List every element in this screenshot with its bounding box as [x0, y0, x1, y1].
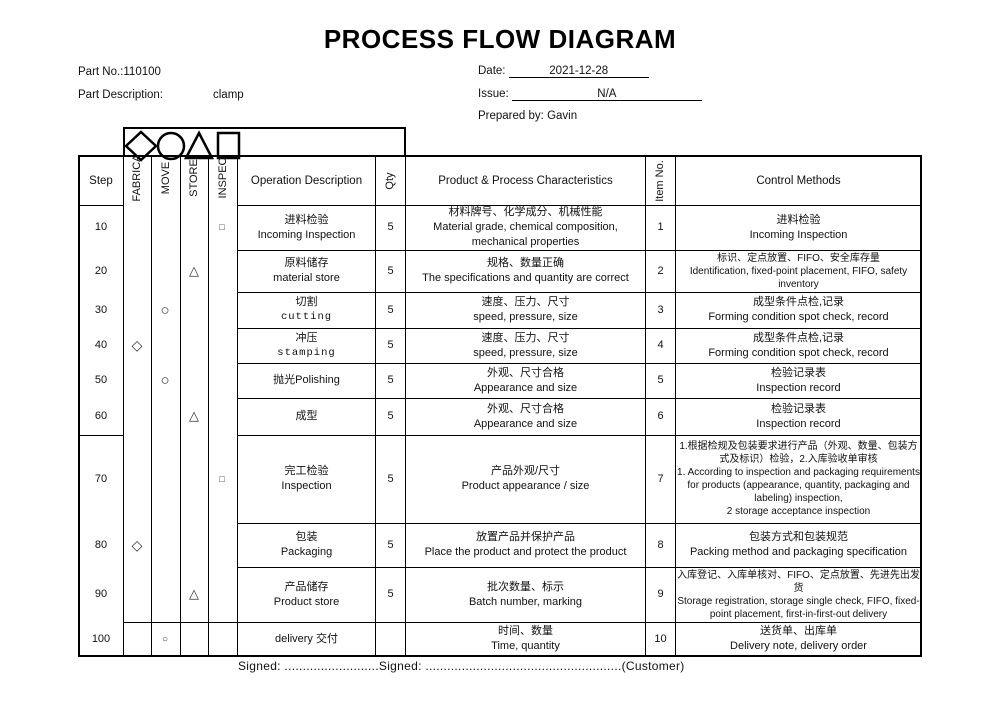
operation-en: Packaging	[281, 545, 332, 560]
operation-cell: 产品储存 Product store	[238, 567, 375, 622]
characteristics-en: Material grade, chemical composition, me…	[406, 220, 645, 250]
row-symbol-triangle-icon: △	[183, 260, 205, 282]
characteristics-cell: 放置产品并保护产品 Place the product and protect …	[406, 523, 645, 567]
operation-cn: delivery 交付	[275, 632, 338, 647]
control-en: Delivery note, delivery order	[730, 639, 867, 654]
row-symbol-triangle-icon: △	[183, 405, 205, 427]
characteristics-cn: 速度、压力、尺寸	[482, 331, 570, 346]
control-cell: 送货单、出库单 Delivery note, delivery order	[676, 622, 921, 656]
column-header-fabricate: FABRICA	[130, 143, 144, 213]
qty-value: 5	[376, 523, 405, 567]
item-no-value: 1	[646, 205, 675, 250]
operation-en: Incoming Inspection	[258, 228, 356, 243]
operation-cell: delivery 交付	[238, 622, 375, 656]
operation-en: Product store	[274, 595, 339, 610]
step-value: 40	[79, 328, 123, 363]
signed-line: Signed: ..........................Signed…	[238, 659, 685, 673]
row-symbol-square-icon: □	[211, 216, 233, 238]
column-header-step: Step	[79, 156, 123, 205]
control-cn: 1.根据检规及包装要求进行产品（外观、数量、包装方式及标识）检验，2.入库验收单…	[676, 440, 921, 466]
step-value: 20	[79, 250, 123, 292]
row-symbol-square-icon: □	[211, 468, 233, 490]
step-value: 100	[79, 622, 123, 656]
characteristics-en: Batch number, marking	[469, 595, 582, 610]
characteristics-cell: 时间、数量 Time, quantity	[406, 622, 645, 656]
characteristics-cn: 材料牌号、化学成分、机械性能	[449, 205, 603, 220]
control-cell: 包装方式和包装规范 Packing method and packaging s…	[676, 523, 921, 567]
control-cn: 检验记录表	[771, 402, 826, 417]
control-cn: 检验记录表	[771, 366, 826, 381]
qty-value: 5	[376, 435, 405, 523]
qty-value: 5	[376, 328, 405, 363]
row-symbol-diamond-icon: ◇	[126, 534, 148, 556]
characteristics-en: Appearance and size	[474, 417, 577, 432]
step-value: 30	[79, 292, 123, 328]
item-no-value: 2	[646, 250, 675, 292]
control-cell: 成型条件点检,记录 Forming condition spot check, …	[676, 328, 921, 363]
operation-cn: 冲压	[296, 331, 318, 346]
control-en: Packing method and packaging specificati…	[690, 545, 907, 560]
operation-cell: 完工检验 Inspection	[238, 435, 375, 523]
characteristics-cn: 外观、尺寸合格	[487, 402, 564, 417]
characteristics-cell: 外观、尺寸合格 Appearance and size	[406, 398, 645, 435]
qty-value: 5	[376, 205, 405, 250]
characteristics-cell: 批次数量、标示 Batch number, marking	[406, 567, 645, 622]
characteristics-en: Appearance and size	[474, 381, 577, 396]
operation-cell: 抛光Polishing	[238, 363, 375, 398]
characteristics-cell: 速度、压力、尺寸 speed, pressure, size	[406, 328, 645, 363]
operation-cell: 原料储存 material store	[238, 250, 375, 292]
step-value: 70	[79, 435, 123, 523]
item-no-value: 8	[646, 523, 675, 567]
control-cell: 标识、定点放置、FIFO、安全库存量 Identification, fixed…	[676, 250, 921, 292]
operation-cn: 产品储存	[285, 580, 329, 595]
column-header-control: Control Methods	[676, 156, 921, 205]
control-en: Forming condition spot check, record	[708, 346, 888, 361]
control-en: Storage registration, storage single che…	[676, 595, 921, 621]
item-no-value: 3	[646, 292, 675, 328]
characteristics-en: The specifications and quantity are corr…	[422, 271, 629, 286]
item-no-value: 5	[646, 363, 675, 398]
operation-cn: 抛光Polishing	[273, 373, 340, 388]
characteristics-cell: 规格、数量正确 The specifications and quantity …	[406, 250, 645, 292]
characteristics-cn: 批次数量、标示	[487, 580, 564, 595]
control-cn: 包装方式和包装规范	[749, 530, 848, 545]
column-header-store: STORE	[187, 143, 201, 213]
row-symbol-diamond-icon: ◇	[126, 334, 148, 356]
process-flow-document: PROCESS FLOW DIAGRAM Part No.:110100 Par…	[0, 0, 1000, 707]
characteristics-cn: 外观、尺寸合格	[487, 366, 564, 381]
operation-en: material store	[273, 271, 340, 286]
qty-value: 5	[376, 363, 405, 398]
control-en: Forming condition spot check, record	[708, 310, 888, 325]
qty-value: 5	[376, 292, 405, 328]
column-header-characteristics: Product & Process Characteristics	[406, 156, 645, 205]
control-en: Identification, fixed-point placement, F…	[676, 265, 921, 291]
operation-cn: 包装	[296, 530, 318, 545]
characteristics-cn: 规格、数量正确	[487, 256, 564, 271]
qty-value: 5	[376, 250, 405, 292]
item-no-value: 7	[646, 435, 675, 523]
control-cell: 检验记录表 Inspection record	[676, 363, 921, 398]
operation-cn: 成型	[296, 409, 318, 424]
operation-cn: 切割	[296, 295, 318, 310]
characteristics-en: speed, pressure, size	[473, 346, 578, 361]
control-cell: 1.根据检规及包装要求进行产品（外观、数量、包装方式及标识）检验，2.入库验收单…	[676, 435, 921, 523]
control-en: Incoming Inspection	[750, 228, 848, 243]
characteristics-cn: 产品外观/尺寸	[491, 464, 560, 479]
control-en: Inspection record	[756, 417, 840, 432]
characteristics-en: Place the product and protect the produc…	[425, 545, 627, 560]
control-cn: 入库登记、入库单核对、FIFO、定点放置、先进先出发货	[676, 569, 921, 595]
row-symbol-circle-icon: ○	[154, 369, 176, 391]
item-no-value: 6	[646, 398, 675, 435]
column-header-operation: Operation Description	[238, 156, 375, 205]
item-no-value: 10	[646, 622, 675, 656]
characteristics-cell: 材料牌号、化学成分、机械性能 Material grade, chemical …	[406, 205, 645, 250]
qty-value	[376, 622, 405, 656]
control-cn: 送货单、出库单	[760, 624, 837, 639]
row-symbol-triangle-icon: △	[183, 583, 205, 605]
step-value: 80	[79, 523, 123, 567]
control-en: 1. According to inspection and packaging…	[676, 466, 921, 518]
control-cn: 标识、定点放置、FIFO、安全库存量	[717, 252, 880, 265]
item-no-value: 4	[646, 328, 675, 363]
column-header-inspect: INSPEC	[216, 143, 230, 213]
operation-cell: 切割 cutting	[238, 292, 375, 328]
operation-en: stamping	[277, 346, 335, 360]
control-cn: 进料检验	[777, 213, 821, 228]
operation-cell: 包装 Packaging	[238, 523, 375, 567]
operation-cell: 冲压 stamping	[238, 328, 375, 363]
control-cell: 进料检验 Incoming Inspection	[676, 205, 921, 250]
step-value: 10	[79, 205, 123, 250]
item-no-value: 9	[646, 567, 675, 622]
step-value: 60	[79, 398, 123, 435]
characteristics-en: speed, pressure, size	[473, 310, 578, 325]
row-symbol-circle-icon: ○	[154, 628, 176, 650]
control-cell: 入库登记、入库单核对、FIFO、定点放置、先进先出发货 Storage regi…	[676, 567, 921, 622]
operation-cn: 进料检验	[285, 213, 329, 228]
operation-en: cutting	[281, 310, 332, 324]
characteristics-en: Time, quantity	[491, 639, 560, 654]
operation-cn: 原料储存	[285, 256, 329, 271]
qty-value: 5	[376, 398, 405, 435]
operation-cn: 完工检验	[285, 464, 329, 479]
characteristics-cell: 速度、压力、尺寸 speed, pressure, size	[406, 292, 645, 328]
operation-cell: 成型	[238, 398, 375, 435]
operation-en: Inspection	[281, 479, 331, 494]
characteristics-en: Product appearance / size	[462, 479, 590, 494]
control-cn: 成型条件点检,记录	[753, 295, 844, 310]
operation-cell: 进料检验 Incoming Inspection	[238, 205, 375, 250]
control-cell: 成型条件点检,记录 Forming condition spot check, …	[676, 292, 921, 328]
qty-value: 5	[376, 567, 405, 622]
row-symbol-circle-icon: ○	[154, 299, 176, 321]
characteristics-cell: 产品外观/尺寸 Product appearance / size	[406, 435, 645, 523]
column-header-move: MOVE	[159, 143, 173, 213]
control-cell: 检验记录表 Inspection record	[676, 398, 921, 435]
control-en: Inspection record	[756, 381, 840, 396]
step-value: 50	[79, 363, 123, 398]
control-cn: 成型条件点检,记录	[753, 331, 844, 346]
characteristics-cn: 时间、数量	[498, 624, 553, 639]
characteristics-cn: 速度、压力、尺寸	[482, 295, 570, 310]
characteristics-cell: 外观、尺寸合格 Appearance and size	[406, 363, 645, 398]
characteristics-cn: 放置产品并保护产品	[476, 530, 575, 545]
step-value: 90	[79, 567, 123, 622]
